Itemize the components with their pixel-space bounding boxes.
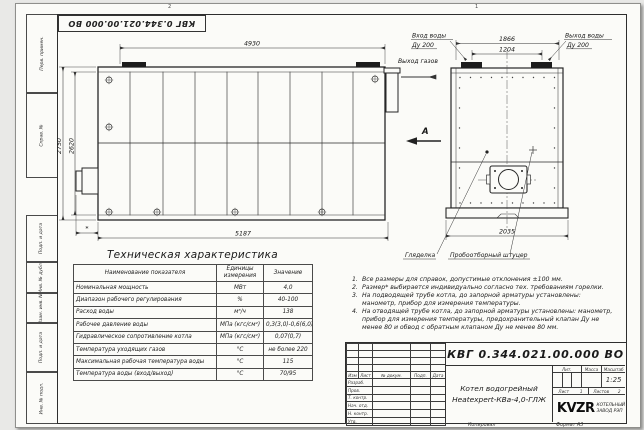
col-data: Дата: [431, 372, 446, 379]
sheets-label: Листов: [593, 389, 609, 394]
burner-flange: [76, 168, 98, 194]
title-block-right-section: Лит. Масса Масштаб 1:25 Лист 1 Листов 2 …: [552, 366, 625, 422]
drawing-scan-page: { "sheet": { "zone_labels": ["2", "1"], …: [0, 0, 644, 430]
spec-header-value: Значение: [264, 265, 313, 282]
kvzr-brand-text: KVZR: [557, 401, 595, 416]
margin-label: Инв. № подл.: [40, 382, 45, 414]
margin-label: Справ. №: [39, 124, 44, 146]
dim-1866: 1866: [499, 36, 515, 43]
water-inlet-label: Вход воды: [412, 33, 446, 40]
spec-row: Температура уходящих газов°Сне более 220: [74, 343, 313, 355]
spec-cell: %: [217, 294, 264, 306]
product-name-line1: Котел водогрейный: [460, 383, 538, 394]
spec-cell: Гидравлическое сопротивление котла: [74, 331, 217, 343]
front-view: [446, 50, 568, 228]
lit-cell: [563, 373, 573, 388]
note-number: 1.: [352, 276, 362, 284]
margin-label: Инв. № дубл.: [40, 262, 45, 293]
role-row: Пров.: [347, 386, 446, 394]
role-label: Утв.: [347, 417, 373, 425]
spec-cell: м³/ч: [217, 306, 264, 318]
dim-2620: 2620: [69, 138, 76, 154]
lit-header: Лит.: [553, 366, 582, 373]
role-row: Нач. отд.: [347, 402, 446, 410]
role-label: Т. контр.: [347, 394, 373, 402]
product-name-line2: Heatexpert-КВа-4,0-ГЛЖ: [452, 394, 546, 405]
role-label: Пров.: [347, 386, 373, 394]
role-label: Нач. отд.: [347, 402, 373, 410]
role-row: Н. контр.: [347, 410, 446, 418]
margin-cell-sprav-no: Справ. №: [26, 93, 57, 178]
sheet-cell: Лист 1: [553, 388, 589, 395]
margin-cell-perv-primen: Перв. примен.: [26, 14, 57, 93]
water-inlet-dn-label: Ду 200: [411, 42, 434, 49]
note-text: На отводящей трубе котла, до запорной ар…: [362, 308, 616, 332]
product-name-cell: Котел водогрейный Heatexpert-КВа-4,0-ГЛЖ: [445, 366, 552, 422]
spec-cell: 0,07(0,7): [264, 331, 313, 343]
margin-label: Взам. инв. №: [40, 293, 45, 323]
spec-cell: МПа (кгс/см²): [217, 319, 264, 331]
scale-header: Масштаб: [602, 366, 625, 373]
spec-row: Расход водым³/ч138: [74, 306, 313, 318]
spec-row: Гидравлическое сопротивление котлаМПа (к…: [74, 331, 313, 343]
mass-cell: [582, 373, 603, 388]
water-outlet-label: Выход воды: [565, 33, 604, 40]
margin-cell-inv-dubl: Инв. № дубл.: [26, 262, 57, 293]
spec-cell: МВт: [217, 282, 264, 294]
revision-empty-row: [347, 358, 446, 365]
spec-cell: Номинальная мощность: [74, 282, 217, 294]
technical-characteristics: Техническая характеристика Наименование …: [73, 249, 312, 381]
spec-row: Диапазон рабочего регулирования%40-100: [74, 294, 313, 306]
view-a-letter: А: [421, 127, 429, 137]
sheets-cell: Листов 2: [589, 388, 625, 395]
spec-cell: Температура уходящих газов: [74, 343, 217, 355]
note-number: 3.: [352, 292, 362, 308]
col-list: Лист: [359, 372, 373, 379]
dim-burner-asterisk: *: [85, 226, 88, 233]
mass-header: Масса: [582, 366, 603, 373]
note-item: 1.Все размеры для справок, допустимые от…: [352, 276, 616, 284]
margin-cell-podp-data-2: Подп. и дата: [26, 323, 57, 372]
top-support-pad-left: [122, 62, 146, 67]
role-label: Н. контр.: [347, 410, 373, 418]
kvzr-logo-icon: [553, 403, 555, 414]
brand-line2: ЗАВОД РЭП: [596, 409, 625, 415]
view-a-arrow: А: [406, 127, 441, 145]
sheet-label: Лист: [558, 389, 569, 394]
spec-row: Номинальная мощностьМВт4,0: [74, 282, 313, 294]
lit-cell: [572, 373, 581, 388]
title-block: Изм Лист № докум. Подп. Дата Разраб. Про…: [345, 342, 627, 424]
spec-header-row: Наименование показателя Единицы измерени…: [74, 265, 313, 282]
boiler-drawing-views: 4930 5187 2750 2620 * Выход газов А: [57, 14, 627, 272]
water-inlet-pipe: [461, 62, 482, 68]
dim-1204: 1204: [499, 47, 515, 54]
role-row: Утв.: [347, 417, 446, 425]
scale-value: 1:25: [602, 373, 625, 388]
zone-number-2: 2: [168, 4, 171, 10]
note-text: На подводящей трубе котла, до запорной а…: [362, 292, 616, 308]
gas-outlet-stub: [384, 68, 400, 112]
doc-number-cell: КВГ 0.344.021.00.000 ВО: [445, 343, 625, 366]
revision-empty-row: [347, 344, 446, 351]
col-podp: Подп.: [411, 372, 431, 379]
role-row: Разраб.: [347, 379, 446, 387]
spec-table: Наименование показателя Единицы измерени…: [73, 264, 313, 381]
peephole-label: Гляделка: [405, 252, 435, 259]
spec-row: Температура воды (вход/выход)°С70/95: [74, 368, 313, 380]
spec-header-units: Единицы измерения: [217, 265, 264, 282]
note-text: Все размеры для справок, допустимые откл…: [362, 276, 616, 284]
note-number: 2.: [352, 284, 362, 292]
spec-cell: Максимальная рабочая температура воды: [74, 356, 217, 368]
dim-2750: 2750: [57, 138, 63, 154]
sheets-value: 2: [618, 389, 621, 394]
spec-row: Рабочее давление водыМПа (кгс/см²)0,3(3,…: [74, 319, 313, 331]
margin-label: Подп. и дата: [40, 223, 45, 254]
top-support-pad-right: [356, 62, 380, 67]
margin-cell-podp-data-1: Подп. и дата: [26, 215, 57, 262]
dim-5187: 5187: [235, 231, 251, 238]
note-item: 3.На подводящей трубе котла, до запорной…: [352, 292, 616, 308]
main-side-view: [76, 62, 400, 220]
title-block-revision-table: Изм Лист № докум. Подп. Дата Разраб. Про…: [346, 343, 446, 426]
peephole-point: [485, 150, 488, 153]
note-item: 2.Размер* выбирается индивидуально согла…: [352, 284, 616, 292]
revision-empty-row: [347, 365, 446, 372]
gas-outlet-label: Выход газов: [398, 58, 438, 65]
format-label: Формат А3: [556, 423, 583, 428]
col-docnum: № докум.: [373, 372, 411, 379]
spec-header-name: Наименование показателя: [74, 265, 217, 282]
spec-cell: 40-100: [264, 294, 313, 306]
note-number: 4.: [352, 308, 362, 332]
note-item: 4.На отводящей трубе котла, до запорной …: [352, 308, 616, 332]
spec-cell: 115: [264, 356, 313, 368]
zone-number-1: 1: [475, 4, 478, 10]
col-izm: Изм: [347, 372, 359, 379]
spec-row: Максимальная рабочая температура воды°С1…: [74, 356, 313, 368]
dim-4930: 4930: [244, 41, 260, 48]
spec-cell: Расход воды: [74, 306, 217, 318]
spec-cell: Рабочее давление воды: [74, 319, 217, 331]
margin-label: Перв. примен.: [40, 36, 45, 71]
margin-cell-inv-podl: Инв. № подл.: [26, 372, 57, 424]
spec-cell: не более 220: [264, 343, 313, 355]
spec-cell: 4,0: [264, 282, 313, 294]
margin-label: Подп. и дата: [40, 332, 45, 363]
spec-cell: °С: [217, 356, 264, 368]
technical-notes: 1.Все размеры для справок, допустимые от…: [352, 276, 616, 332]
spec-cell: °С: [217, 368, 264, 380]
lit-cell: [553, 373, 563, 388]
sampler-label: Пробоотборный штуцер: [450, 251, 528, 259]
dim-2035: 2035: [499, 229, 515, 236]
water-outlet-dn-label: Ду 200: [566, 42, 589, 49]
kvzr-brand-subtitle: КОТЕЛЬНЫЙ ЗАВОД РЭП: [596, 403, 625, 414]
spec-cell: Диапазон рабочего регулирования: [74, 294, 217, 306]
revision-empty-row: [347, 351, 446, 358]
company-logo: KVZR КОТЕЛЬНЫЙ ЗАВОД РЭП: [553, 395, 625, 422]
spec-cell: °С: [217, 343, 264, 355]
spec-cell: 70/95: [264, 368, 313, 380]
margin-cell-vzam-inv: Взам. инв. №: [26, 293, 57, 323]
spec-table-title: Техническая характеристика: [73, 249, 312, 261]
role-label: Разраб.: [347, 379, 373, 387]
copied-label: Копировал: [468, 423, 495, 428]
water-outlet-pipe: [531, 62, 552, 68]
spec-cell: МПа (кгс/см²): [217, 331, 264, 343]
spec-cell: Температура воды (вход/выход): [74, 368, 217, 380]
spec-cell: 0,3(3,0)-0,6(6,0): [264, 319, 313, 331]
revision-header-row: Изм Лист № докум. Подп. Дата: [347, 372, 446, 379]
spec-cell: 138: [264, 306, 313, 318]
sheet-value: 1: [580, 389, 583, 394]
role-row: Т. контр.: [347, 394, 446, 402]
note-text: Размер* выбирается индивидуально согласн…: [362, 284, 616, 292]
